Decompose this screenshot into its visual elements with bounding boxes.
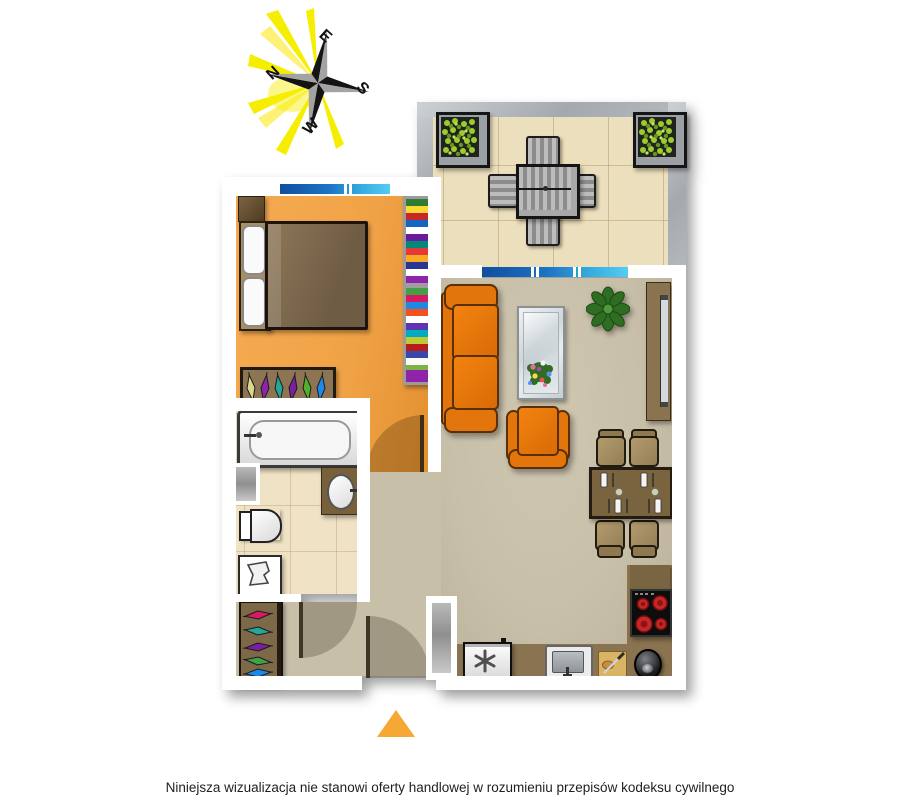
window-divider <box>349 184 352 194</box>
wall-bathroom-right <box>357 398 370 602</box>
washbasin <box>327 474 355 510</box>
wall-outer-left <box>222 177 236 690</box>
bathtub-faucet-icon <box>244 434 256 437</box>
window-divider <box>578 267 581 277</box>
washbasin-vanity <box>321 467 361 515</box>
flower-bouquet-icon <box>522 354 558 390</box>
nightstand <box>238 196 265 222</box>
dining-chair <box>629 429 659 467</box>
bedroom-window <box>280 184 390 194</box>
wall-bathroom-bottom <box>222 594 301 602</box>
double-bed <box>239 221 365 327</box>
toilet <box>239 509 280 540</box>
floorplan-page: N E S W <box>0 0 900 795</box>
bed-pillow <box>242 225 266 275</box>
dining-chair <box>595 520 625 558</box>
bathtub-drain <box>256 432 262 438</box>
bed-fold <box>268 224 281 327</box>
dining-chair <box>629 520 659 558</box>
bathroom-door-icon <box>301 602 357 658</box>
clothes-hangers-icon <box>241 603 277 679</box>
window-divider <box>536 267 539 277</box>
balcony-window <box>482 267 628 277</box>
wall-living-top-left <box>428 265 482 278</box>
tv-board <box>646 282 671 421</box>
chair-seat <box>629 436 659 467</box>
armchair-seat <box>517 406 559 456</box>
armchair <box>506 404 570 467</box>
wall-outer-bottom-left <box>222 676 362 690</box>
bedroom-door-icon <box>367 415 424 472</box>
kitchen-counter-cap <box>630 565 670 590</box>
disclaimer-text: Niniejsza wizualizacja nie stanowi ofert… <box>0 780 900 795</box>
cutting-board <box>598 651 627 678</box>
tv-screen-icon <box>660 295 668 407</box>
wall-outer-bottom-right <box>436 676 686 690</box>
bed-mattress <box>265 221 368 330</box>
hall-wardrobe <box>239 601 283 685</box>
laundry-basket <box>238 555 282 597</box>
sofa <box>441 284 500 429</box>
dining-table <box>589 467 673 519</box>
toilet-bowl <box>250 509 282 543</box>
window-divider <box>573 267 576 277</box>
wall-outer-right <box>672 265 686 690</box>
dining-chair <box>596 429 626 467</box>
entrance-arrow-icon <box>377 710 415 737</box>
chair-seat <box>596 436 626 467</box>
sofa-cushion <box>452 355 499 410</box>
chair-back <box>597 545 623 558</box>
bathtub <box>237 410 361 468</box>
partition-core <box>432 603 451 673</box>
window-divider <box>344 184 347 194</box>
kitchen-partition <box>426 596 457 680</box>
bathtub-basin <box>249 420 351 460</box>
laundry-icon <box>240 557 276 591</box>
chair-back <box>631 545 657 558</box>
wall-bathroom-top <box>222 398 370 411</box>
stove-hob <box>630 589 672 637</box>
bed-pillow <box>242 277 266 327</box>
freezer-asterisk-icon <box>465 646 506 676</box>
floor-plan <box>0 0 900 795</box>
coffee-table <box>517 306 565 400</box>
fridge-hinge <box>501 638 506 643</box>
radiator <box>234 467 256 501</box>
entrance-door-icon <box>368 616 430 678</box>
window-divider <box>531 267 534 277</box>
wardrobe-door-edge <box>277 603 281 683</box>
wall-bedroom-right <box>428 177 441 472</box>
pot-lid-highlight <box>642 664 653 673</box>
potted-plant-icon <box>586 286 630 332</box>
sofa-cushion <box>452 304 499 360</box>
sofa-armrest <box>444 407 498 433</box>
